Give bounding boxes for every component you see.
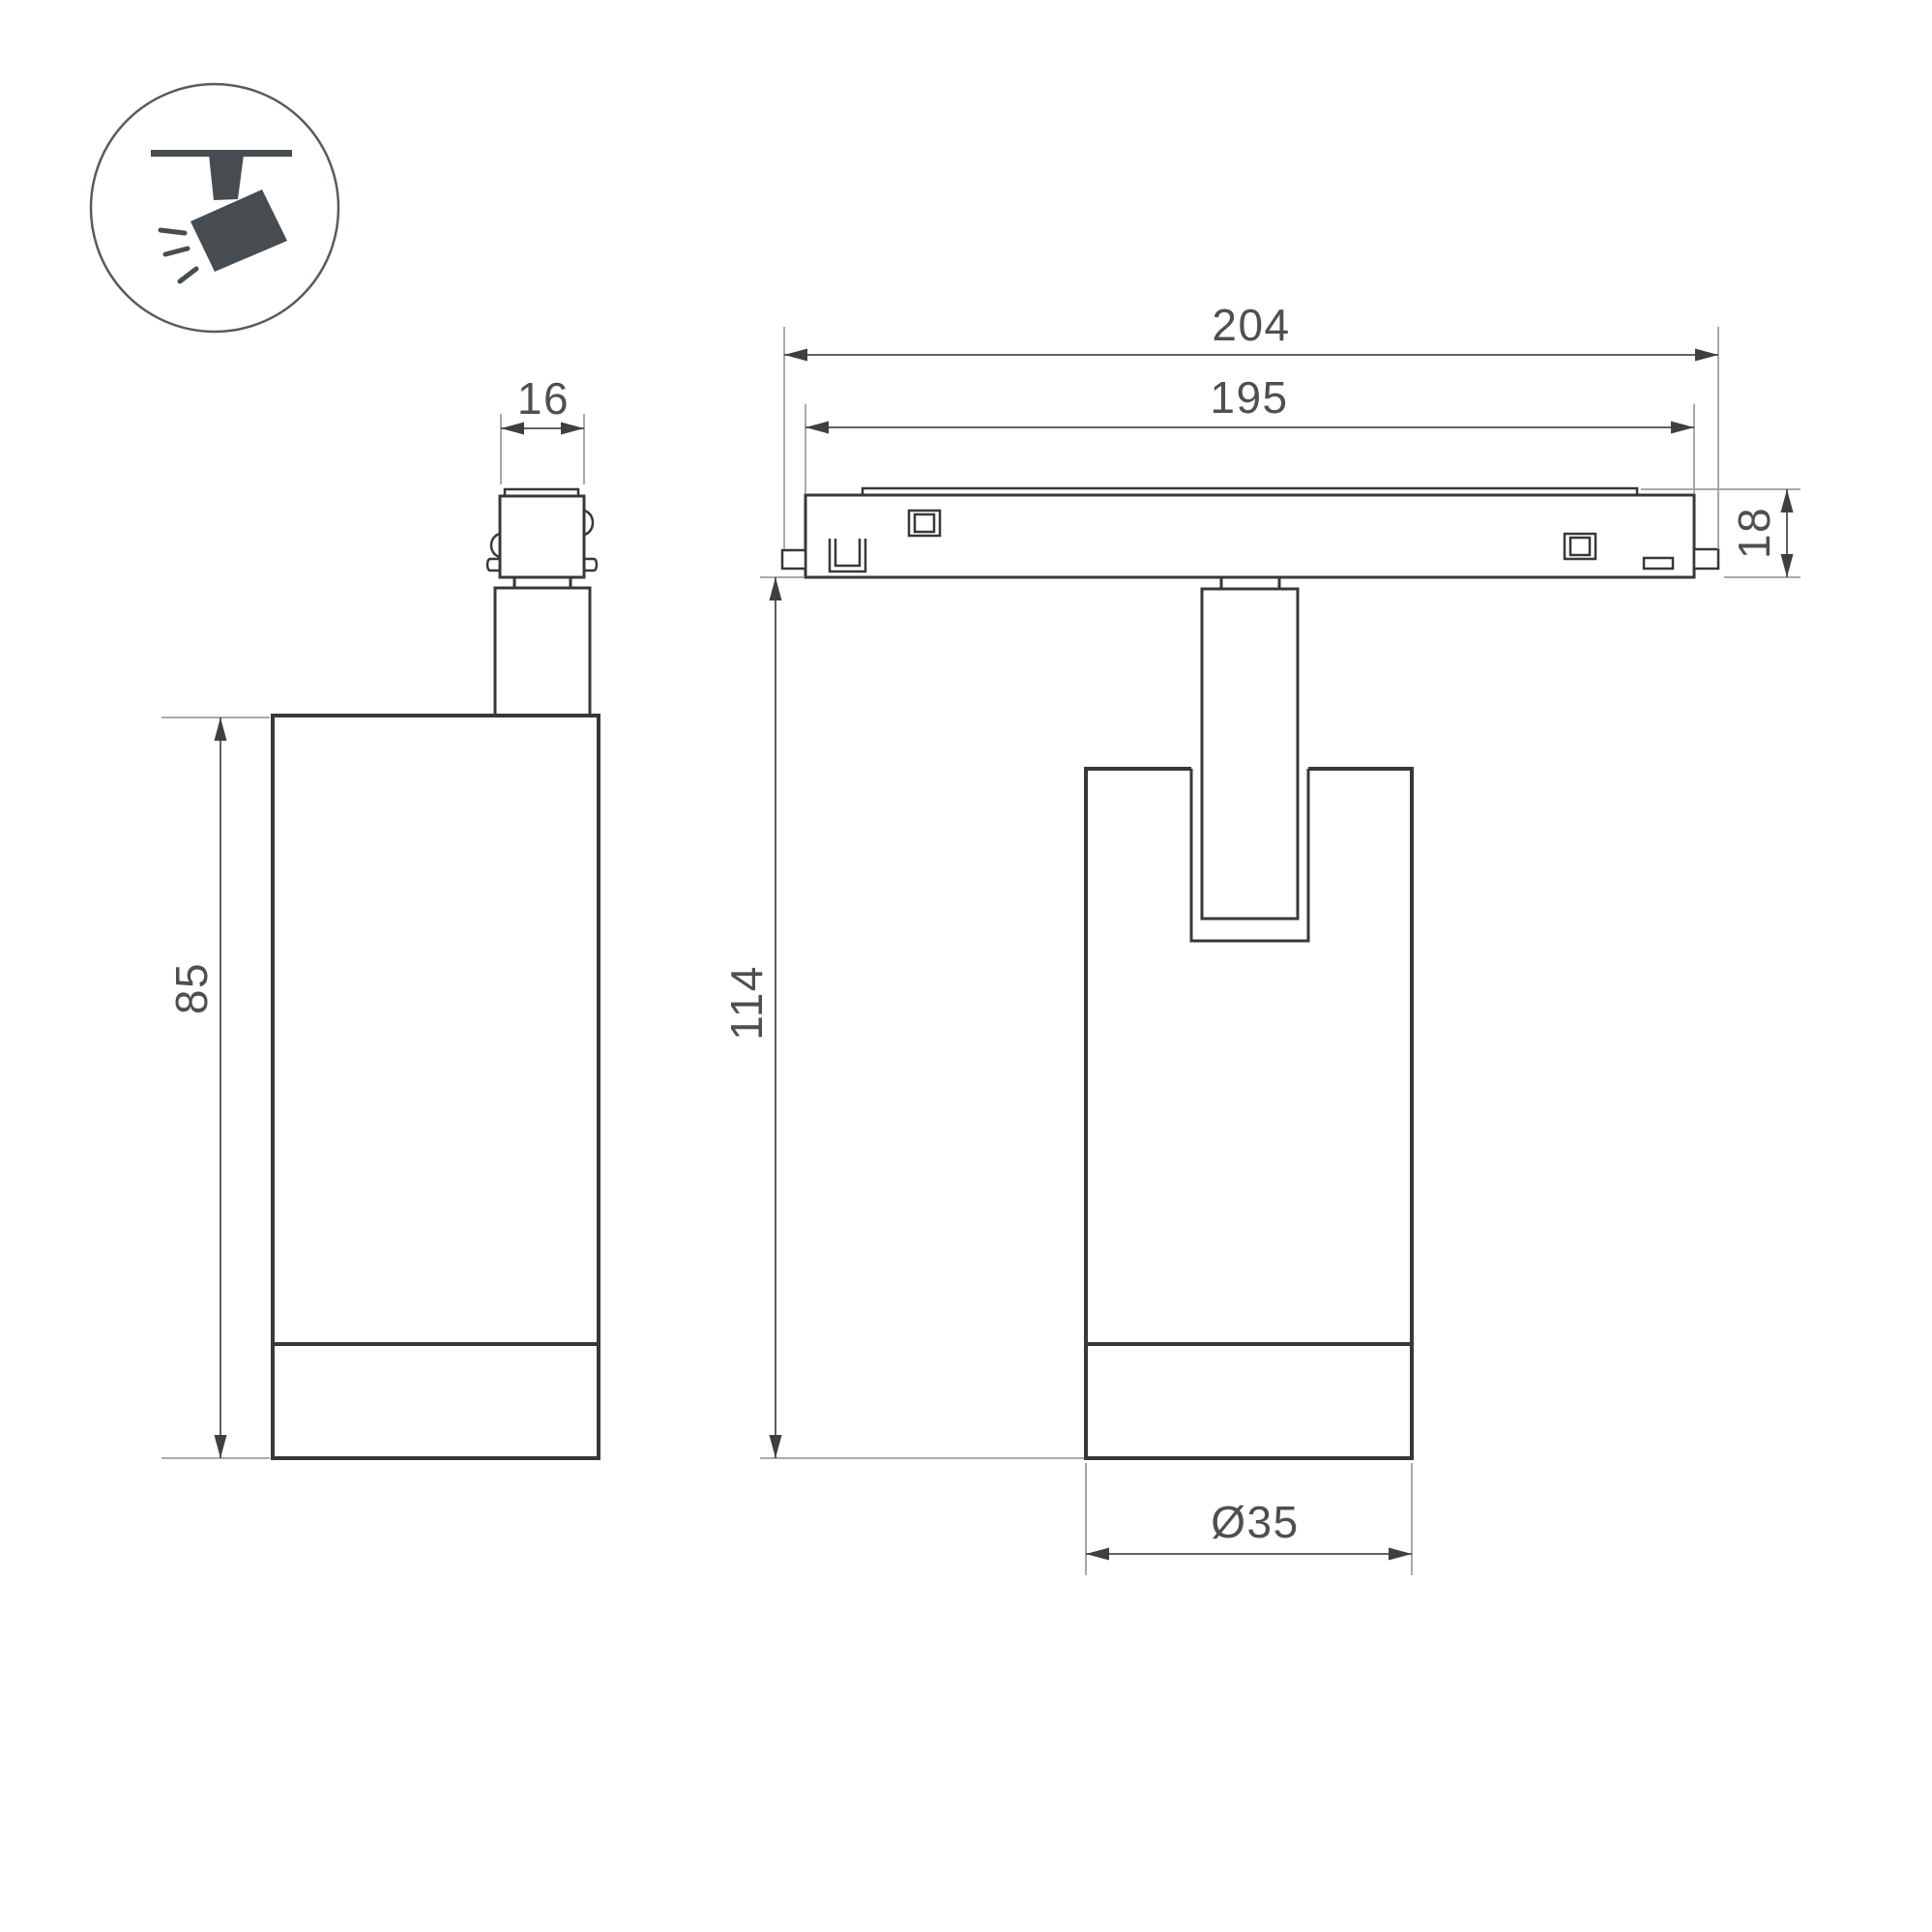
dim-overall-height: 114 (721, 577, 1084, 1458)
dim-track-inner: 195 (805, 372, 1694, 494)
dim-body-height: 85 (161, 717, 270, 1458)
track-tab-left (782, 550, 805, 569)
dim114-arrow-top (770, 577, 782, 600)
side-track-adapter (500, 496, 584, 577)
dim204-arrow-right (1695, 349, 1718, 362)
dim195-arrow-right (1671, 422, 1694, 434)
dim195-label: 195 (1210, 372, 1288, 423)
technical-drawing: 16 85 (0, 0, 1932, 1932)
dim18-arrow-bottom (1781, 554, 1794, 577)
dim35-label: Ø35 (1211, 1497, 1299, 1547)
icon-circle (91, 84, 338, 332)
drawing-sheet: 16 85 (0, 0, 1932, 1932)
dim-body-diameter: Ø35 (1086, 1463, 1412, 1575)
icon-mount-stem (209, 155, 244, 200)
dim204-arrow-left (784, 349, 807, 362)
dim35-arrow-right (1389, 1548, 1412, 1561)
side-view (273, 489, 599, 1458)
side-neck (514, 577, 571, 588)
dim18-label: 18 (1729, 507, 1779, 559)
track-spotlight-icon (91, 84, 338, 332)
dim195-arrow-left (805, 422, 829, 434)
side-stem (495, 588, 590, 716)
side-foot-right (584, 559, 597, 571)
front-view (782, 488, 1718, 1458)
dim85-arrow-bottom (215, 1435, 227, 1458)
side-body (273, 716, 599, 1458)
dim114-label: 114 (721, 965, 772, 1040)
dim16-label: 16 (517, 373, 570, 424)
icon-ray-2 (165, 249, 188, 254)
front-stem (1202, 589, 1298, 919)
dim18-arrow-top (1781, 489, 1794, 512)
dim204-label: 204 (1212, 300, 1290, 350)
dim16-arrow-left (501, 423, 524, 435)
icon-spot-body (190, 190, 287, 272)
icon-ray-3 (180, 269, 196, 281)
dim85-label: 85 (166, 962, 217, 1014)
dim-adapter-width: 16 (501, 373, 584, 484)
icon-ray-1 (161, 230, 185, 233)
dim85-arrow-top (215, 717, 227, 741)
dim114-arrow-bottom (770, 1435, 782, 1458)
front-stem-connector (1221, 577, 1279, 589)
side-foot-left (487, 559, 500, 571)
dim35-arrow-left (1086, 1548, 1109, 1561)
dim16-arrow-right (561, 423, 584, 435)
track-tab-right (1694, 549, 1718, 569)
